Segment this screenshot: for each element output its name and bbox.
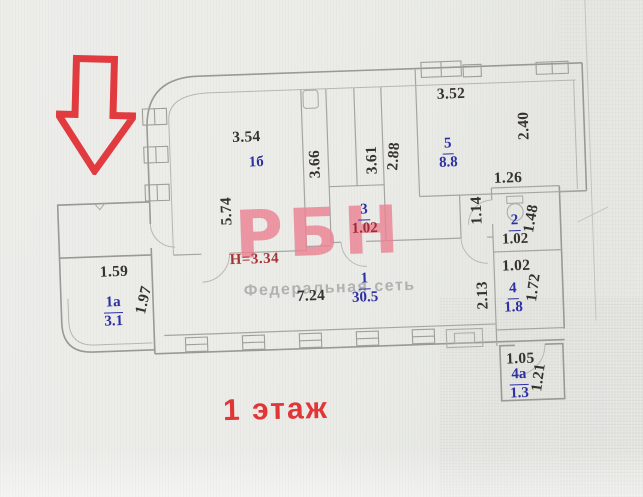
sink-icon bbox=[303, 90, 319, 109]
room-label-2: 2 1.02 bbox=[501, 213, 528, 248]
window-symbol bbox=[142, 108, 167, 125]
room-number: 3 bbox=[358, 202, 370, 220]
dimension-3-52: 3.52 bbox=[437, 85, 466, 104]
room-5-bottom-wall bbox=[420, 191, 587, 197]
room-label-5: 5 8.8 bbox=[438, 136, 458, 171]
room-number: 1 bbox=[358, 271, 370, 289]
wall-face bbox=[574, 80, 578, 189]
dimension-3-61: 3.61 bbox=[363, 146, 382, 175]
room-label-3: 3 1.02 bbox=[351, 202, 378, 237]
room-label-1: 1 30.5 bbox=[351, 271, 378, 306]
room-number: 1б bbox=[247, 155, 267, 172]
room-label-1a: 1а 3.1 bbox=[103, 295, 123, 330]
door-arc bbox=[150, 223, 175, 248]
window-symbol bbox=[185, 337, 207, 352]
toilet-tank bbox=[507, 196, 523, 204]
room-label-1b: 1б bbox=[247, 155, 267, 172]
room-area: 3.1 bbox=[104, 314, 123, 330]
window-symbol bbox=[299, 333, 321, 348]
dimension-2-88: 2.88 bbox=[384, 142, 404, 172]
door-arc bbox=[461, 237, 488, 264]
wall-segment bbox=[460, 195, 462, 238]
window-symbol bbox=[356, 331, 378, 346]
dimension-7-24: 7.24 bbox=[297, 287, 326, 306]
dimension-3-66: 3.66 bbox=[306, 150, 325, 179]
window-symbol bbox=[421, 61, 461, 77]
dimension-2-40: 2.40 bbox=[515, 111, 534, 140]
room-area: 1.02 bbox=[351, 221, 378, 238]
room-label-4: 4 1.8 bbox=[503, 281, 523, 316]
room-number: 4 bbox=[507, 281, 519, 299]
room-area: 1.8 bbox=[504, 300, 523, 316]
room-area: 1.02 bbox=[502, 232, 529, 249]
wall-segment bbox=[491, 188, 497, 346]
floorplan-photo: РБН Федеральная сеть Н=3.34 3.54 3.52 1.… bbox=[0, 0, 643, 497]
room-number: 5 bbox=[442, 136, 454, 154]
room-number: 2 bbox=[508, 213, 520, 231]
dimension-5-74: 5.74 bbox=[217, 197, 236, 226]
dimension-1-59: 1.59 bbox=[100, 263, 129, 282]
room-area: 8.8 bbox=[439, 155, 458, 171]
wall-top bbox=[198, 63, 582, 76]
room-area: 1.3 bbox=[510, 386, 529, 402]
wall-segment bbox=[415, 69, 419, 197]
dimension-3-54: 3.54 bbox=[232, 128, 261, 147]
wall-bottom bbox=[155, 340, 565, 354]
window-symbol bbox=[412, 329, 434, 344]
room-number: 1а bbox=[103, 295, 123, 313]
wall-right bbox=[555, 63, 591, 329]
room-number: 4а bbox=[509, 367, 529, 385]
steps-detail bbox=[446, 328, 483, 347]
dimension-1-26: 1.26 bbox=[494, 169, 523, 188]
wall-topleft-curve bbox=[145, 76, 200, 129]
dimension-2-13: 2.13 bbox=[474, 281, 493, 310]
door-arc bbox=[201, 253, 230, 282]
sheet-artifacts bbox=[552, 0, 612, 322]
window-symbol bbox=[242, 335, 264, 350]
wall-segment bbox=[354, 88, 357, 186]
ceiling-height-note: Н=3.34 bbox=[229, 250, 279, 269]
porch-outline bbox=[58, 202, 152, 258]
dimension-1-14: 1.14 bbox=[468, 196, 487, 225]
room-area: 30.5 bbox=[352, 290, 379, 307]
entrance-down-arrow-icon bbox=[54, 54, 137, 176]
room-label-4a: 4а 1.3 bbox=[509, 367, 529, 402]
floor-label: 1 этаж bbox=[223, 392, 330, 428]
